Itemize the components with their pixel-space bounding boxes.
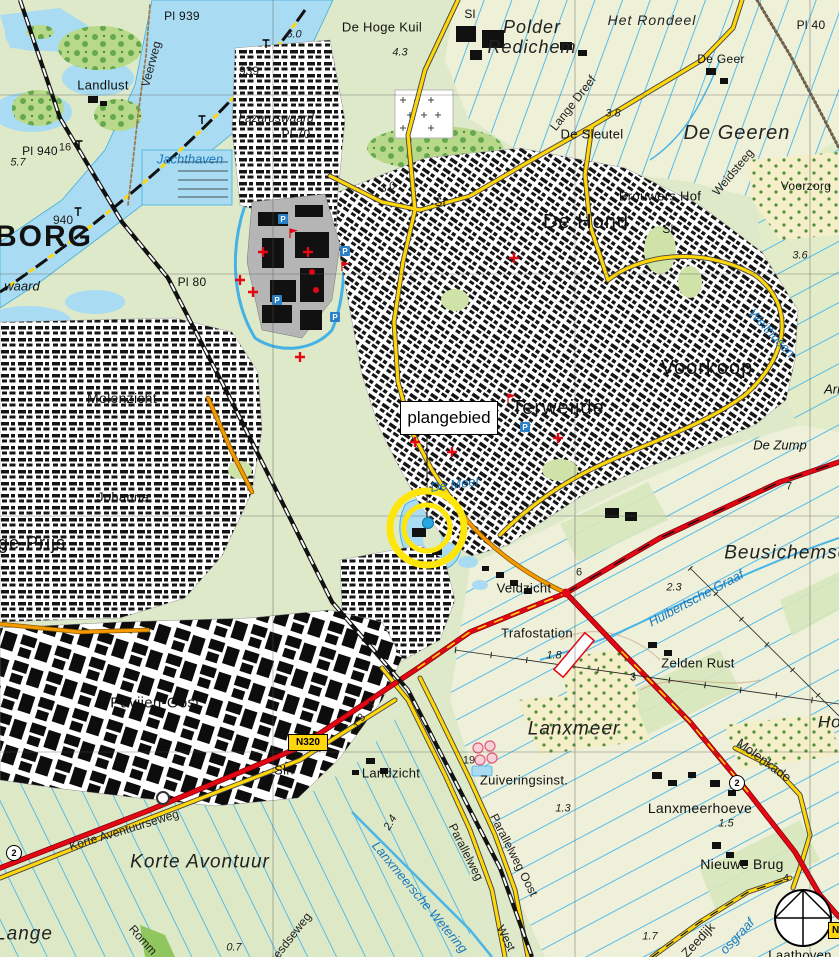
n-road-badge-partial: N — [828, 922, 839, 939]
parking-icon: P — [522, 423, 528, 432]
parking-icon: P — [274, 296, 280, 305]
compass-rose-icon — [775, 890, 831, 946]
topographic-map: P P P P P Pl 9396.0De Hoge KuilSlPolderR… — [0, 0, 839, 957]
route-2-badge: 2 — [6, 845, 22, 861]
roundabout — [157, 792, 169, 804]
parking-icon: P — [280, 215, 286, 224]
parking-icon: P — [342, 247, 348, 256]
plangebied-callout: plangebied — [400, 401, 498, 435]
route-2-badge: 2 — [729, 775, 745, 791]
highlight-dot — [423, 518, 434, 529]
n320-road-badge: N320 — [288, 734, 328, 751]
parking-icon: P — [332, 313, 338, 322]
plangebied-label: plangebied — [407, 408, 490, 428]
map-graphic: P P P P P — [0, 0, 839, 957]
